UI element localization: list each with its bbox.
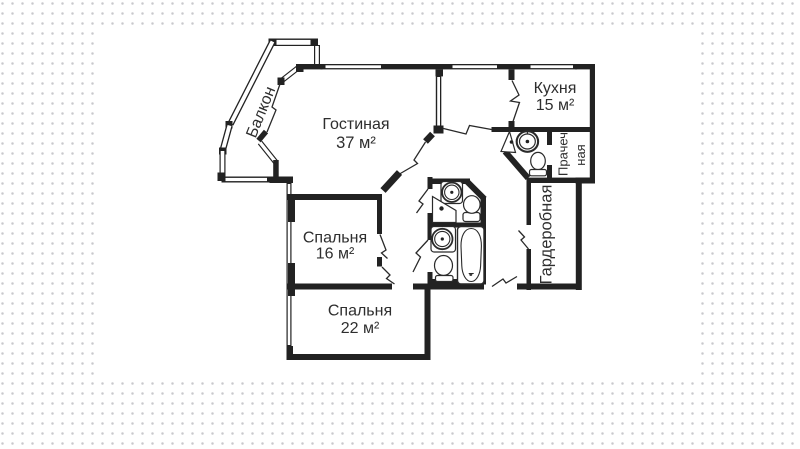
svg-text:Спальня: Спальня: [328, 303, 392, 320]
svg-text:Кухня: Кухня: [534, 80, 577, 97]
svg-text:Гостиная: Гостиная: [322, 116, 389, 133]
svg-text:Спальня: Спальня: [303, 230, 367, 247]
svg-text:ная: ная: [573, 144, 588, 165]
svg-text:16 м²: 16 м²: [316, 246, 355, 263]
svg-text:37 м²: 37 м²: [336, 134, 376, 152]
svg-text:Гардеробная: Гардеробная: [538, 185, 556, 285]
svg-text:22 м²: 22 м²: [341, 320, 380, 337]
svg-text:15 м²: 15 м²: [536, 97, 575, 114]
svg-text:Прачеч: Прачеч: [556, 132, 571, 176]
